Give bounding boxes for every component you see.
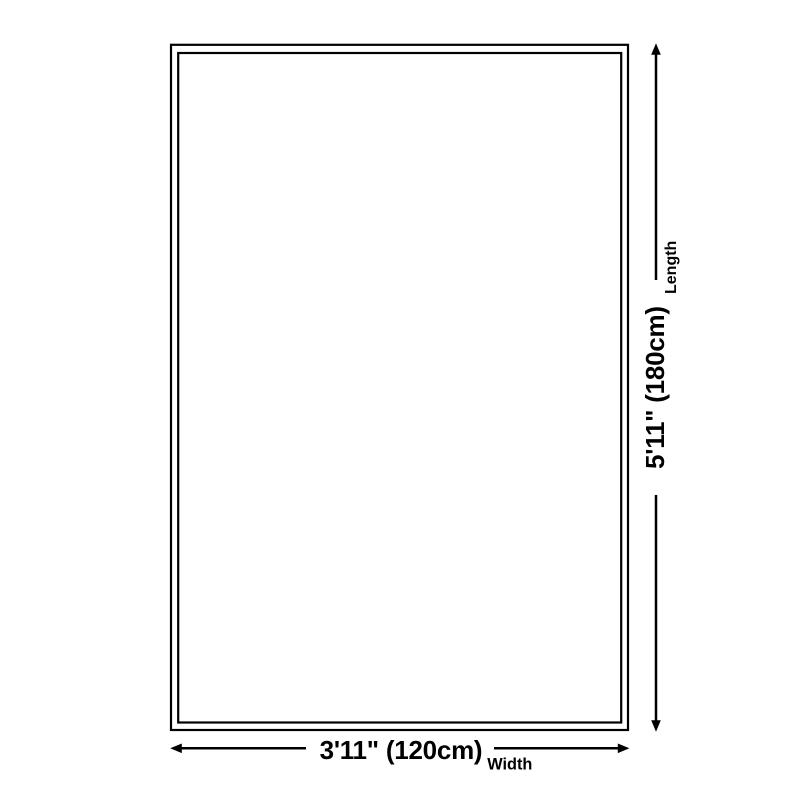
svg-text:3'11" (120cm): 3'11" (120cm) (320, 735, 483, 765)
svg-text:5'11" (180cm): 5'11" (180cm) (640, 306, 670, 469)
svg-text:Length: Length (663, 241, 680, 294)
svg-text:Width: Width (487, 756, 532, 774)
